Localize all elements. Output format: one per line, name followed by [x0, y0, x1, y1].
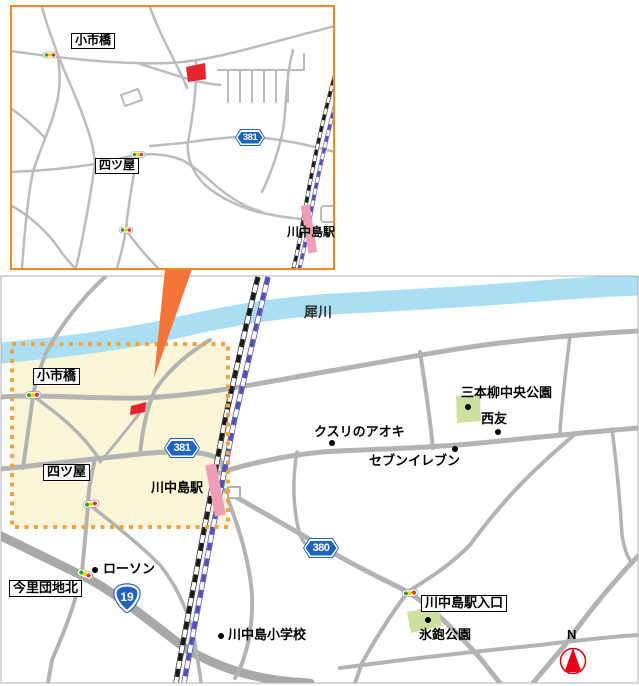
route-shield-380: 380 [303, 538, 339, 558]
poi-dot [92, 567, 98, 573]
poi-dot [218, 633, 224, 639]
compass-icon [561, 648, 586, 674]
inset-label-station: 川中島駅 [287, 226, 335, 240]
poi-dot [495, 429, 501, 435]
label-seiyu: 西友 [481, 412, 507, 427]
compass-north-label: N [567, 627, 576, 642]
label-seven-eleven: セブンイレブン [369, 454, 460, 469]
route-shield-381-inset: 381 [235, 129, 265, 146]
route-number: 19 [113, 590, 141, 604]
route-shield-shape: 380 [306, 541, 337, 556]
route-shield-381: 381 [164, 438, 200, 458]
road [340, 635, 638, 668]
traffic-light-icon [402, 589, 419, 598]
inset-label-yotsuya: 四ツ屋 [95, 158, 139, 174]
label-imasato-danchi-kita: 今里団地北 [9, 580, 82, 597]
label-station-entrance: 川中島駅入口 [421, 595, 507, 612]
route-shield-shape: 381 [238, 132, 263, 144]
traffic-light-icon [25, 391, 41, 399]
label-sanbonyanagi-park: 三本柳中央公園 [461, 386, 552, 401]
poi-dot [425, 617, 431, 623]
poi-dot [329, 440, 335, 446]
road [294, 452, 330, 552]
label-kusuri-no-aoki: クスリのアオキ [314, 425, 405, 440]
road-route19 [1, 536, 310, 683]
main-map [1, 277, 639, 683]
poi-dot [452, 446, 458, 452]
route-number: 381 [174, 442, 191, 454]
label-yotsuya: 四ツ屋 [43, 464, 90, 481]
route-shield-19: 19 [113, 583, 141, 613]
label-station: 川中島駅 [151, 481, 203, 496]
route-shield-shape: 381 [167, 441, 198, 456]
label-koichibashi: 小市橋 [33, 368, 80, 385]
route-number: 381 [243, 132, 257, 143]
river-label: 犀川 [304, 304, 332, 320]
poi-dot [465, 404, 471, 410]
road [420, 352, 433, 448]
map-page: 小市橋 四ツ屋 川中島駅 犀川 小市橋 四ツ屋 川中島駅 三本柳中央公園 クスリ… [0, 0, 639, 686]
route-number: 380 [313, 542, 330, 554]
road [228, 500, 252, 678]
label-lawson: ローソン [103, 562, 155, 577]
road [612, 429, 631, 562]
road [560, 335, 570, 432]
label-higano-park: 氷鉋公園 [419, 628, 471, 643]
label-elementary-school: 川中島小学校 [228, 628, 306, 643]
inset-label-koichibashi: 小市橋 [71, 33, 115, 49]
